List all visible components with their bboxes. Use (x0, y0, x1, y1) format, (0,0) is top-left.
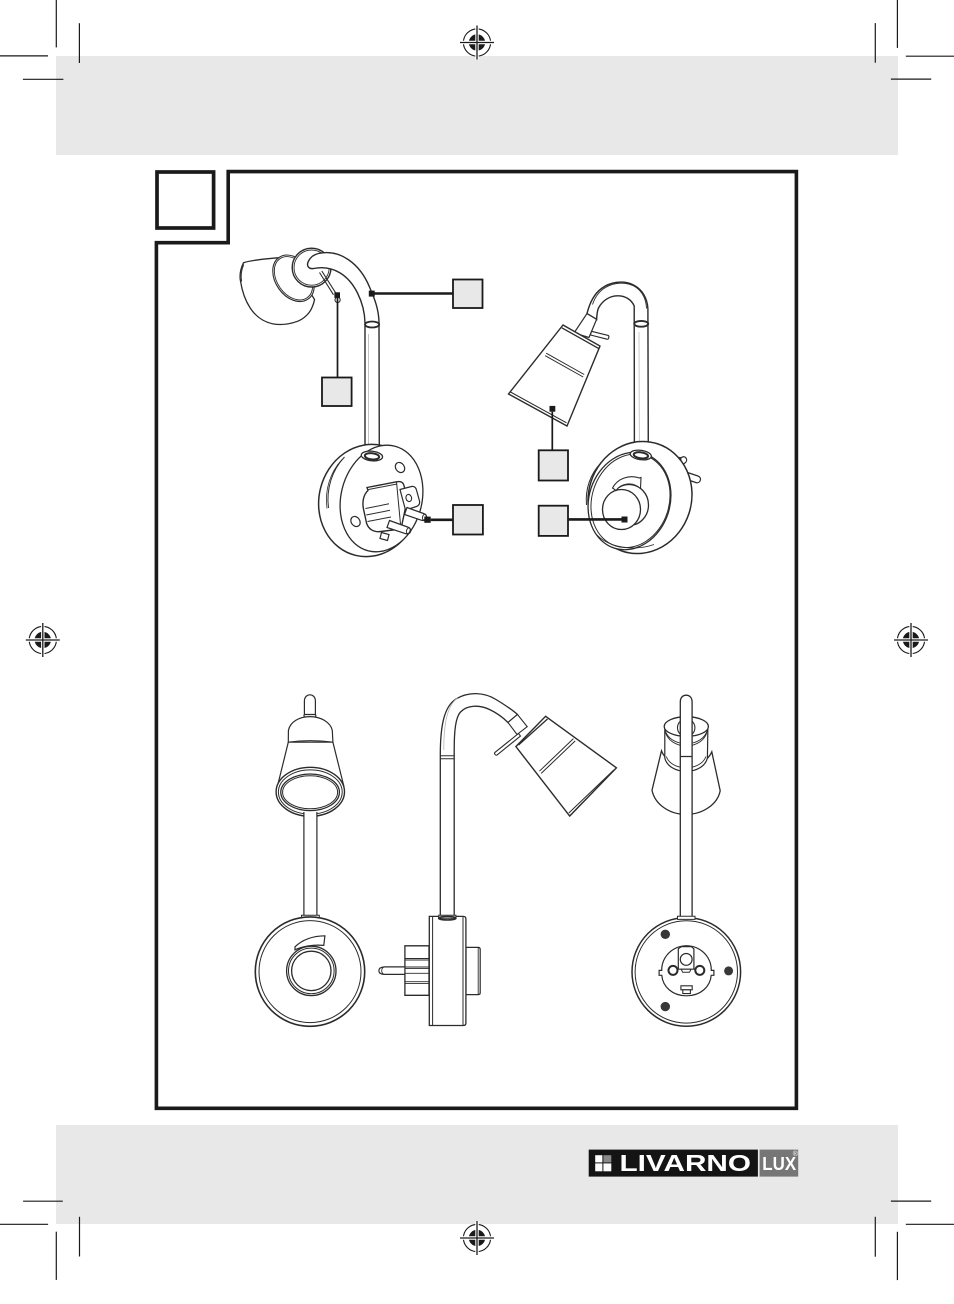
svg-text:®: ® (793, 1150, 799, 1158)
svg-text:LIVARNO: LIVARNO (620, 1150, 752, 1176)
svg-text:LUX: LUX (762, 1153, 796, 1174)
